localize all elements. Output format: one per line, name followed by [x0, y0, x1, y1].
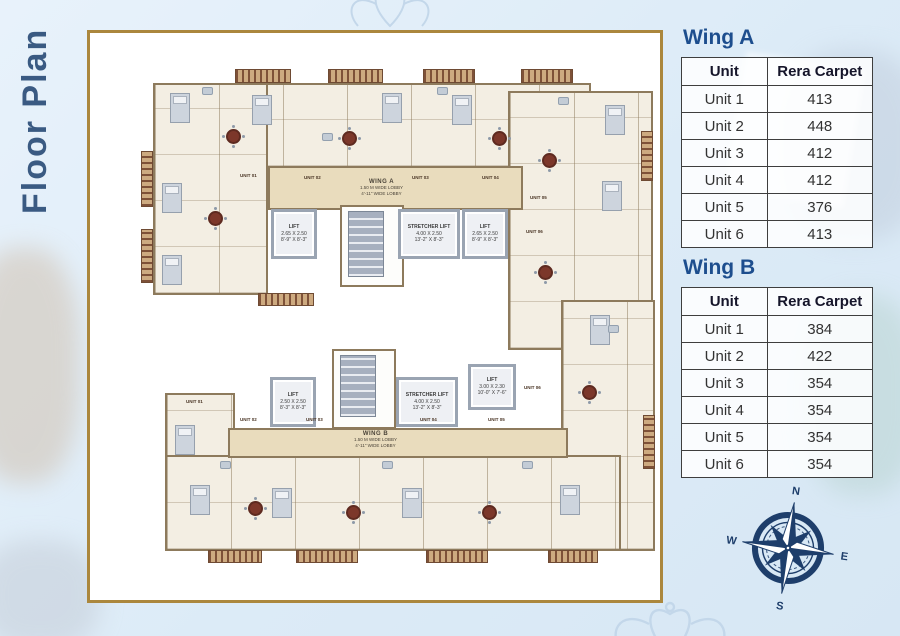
- wing-b-room-band: [165, 455, 621, 551]
- table-row: Unit 4412: [682, 167, 873, 194]
- table-row: Unit 5376: [682, 194, 873, 221]
- unit-tag: UNIT 02: [304, 175, 321, 180]
- compass-rose-icon: N E S W: [718, 478, 858, 618]
- furniture-bed: [170, 93, 190, 123]
- wing-a-stretcher-lift: STRETCHER LIFT 4.00 X 2.50 13'-2" X 8'-3…: [398, 209, 460, 259]
- balcony: [235, 69, 291, 83]
- furniture-bed: [272, 488, 292, 518]
- compass-south-label: S: [775, 600, 784, 613]
- unit-tag: UNIT 01: [240, 173, 257, 178]
- wing-a-section: Wing A Unit Rera Carpet Unit 1413 Unit 2…: [681, 26, 881, 248]
- furniture-dining-table: [346, 505, 361, 520]
- compass-west-label: W: [725, 534, 738, 547]
- furniture-bath-fixture: [322, 133, 333, 141]
- table-row: Unit 2448: [682, 113, 873, 140]
- unit-cell: Unit 1: [682, 86, 768, 113]
- unit-cell: Unit 6: [682, 221, 768, 248]
- lift-size-ft: 8'-3" X 8'-3": [280, 405, 306, 412]
- page-title: Floor Plan: [16, 28, 55, 214]
- furniture-dining-table: [248, 501, 263, 516]
- balcony: [141, 229, 153, 283]
- col-header-rera: Rera Carpet: [767, 58, 872, 86]
- unit-tag: UNIT 01: [186, 399, 203, 404]
- lift-size-ft: 13'-2" X 8'-3": [413, 405, 442, 412]
- table-row: Unit 5354: [682, 424, 873, 451]
- table-row: Unit 1413: [682, 86, 873, 113]
- unit-cell: Unit 6: [682, 451, 768, 478]
- furniture-bath-fixture: [220, 461, 231, 469]
- wing-b-heading: Wing B: [683, 256, 881, 280]
- carpet-cell: 412: [767, 167, 872, 194]
- furniture-dining-table: [542, 153, 557, 168]
- compass-north-label: N: [791, 485, 801, 498]
- balcony: [328, 69, 383, 83]
- carpet-cell: 384: [767, 316, 872, 343]
- compass-east-label: E: [840, 550, 849, 563]
- unit-cell: Unit 4: [682, 397, 768, 424]
- background-photo-blur-left: [0, 248, 80, 483]
- carpet-cell: 354: [767, 370, 872, 397]
- wing-b-lobby-ft: 4'-11" WIDE LOBBY: [328, 443, 423, 449]
- furniture-bed: [602, 181, 622, 211]
- furniture-dining-table: [582, 385, 597, 400]
- unit-tag: UNIT 03: [306, 417, 323, 422]
- lift-size-ft: 8'-9" X 8'-3": [281, 237, 307, 244]
- floor-plan-panel: LIFT 2.65 X 2.50 8'-9" X 8'-3" STRETCHER…: [87, 30, 663, 603]
- balcony: [296, 550, 358, 563]
- balcony: [521, 69, 573, 83]
- furniture-bed: [175, 425, 195, 455]
- unit-cell: Unit 2: [682, 343, 768, 370]
- wing-a-label: WING A 1.50 M WIDE LOBBY 4'-11" WIDE LOB…: [334, 179, 429, 197]
- col-header-rera: Rera Carpet: [767, 288, 872, 316]
- unit-tag: UNIT 05: [530, 195, 547, 200]
- unit-cell: Unit 4: [682, 167, 768, 194]
- unit-cell: Unit 5: [682, 194, 768, 221]
- header-row: Unit Rera Carpet: [682, 58, 873, 86]
- furniture-bath-fixture: [522, 461, 533, 469]
- wing-b-section: Wing B Unit Rera Carpet Unit 1384 Unit 2…: [681, 256, 881, 478]
- unit-cell: Unit 1: [682, 316, 768, 343]
- furniture-bed: [590, 315, 610, 345]
- furniture-bath-fixture: [608, 325, 619, 333]
- table-row: Unit 3354: [682, 370, 873, 397]
- unit-cell: Unit 3: [682, 370, 768, 397]
- carpet-cell: 412: [767, 140, 872, 167]
- furniture-bed: [452, 95, 472, 125]
- col-header-unit: Unit: [682, 58, 768, 86]
- furniture-bath-fixture: [202, 87, 213, 95]
- balcony: [258, 293, 314, 306]
- furniture-bath-fixture: [437, 87, 448, 95]
- lift-size-ft: 8'-9" X 8'-3": [472, 237, 498, 244]
- furniture-bed: [382, 93, 402, 123]
- furniture-bed: [560, 485, 580, 515]
- carpet-cell: 354: [767, 451, 872, 478]
- furniture-dining-table: [492, 131, 507, 146]
- furniture-bed: [162, 255, 182, 285]
- unit-tag: UNIT 06: [526, 229, 543, 234]
- furniture-dining-table: [342, 131, 357, 146]
- carpet-cell: 376: [767, 194, 872, 221]
- unit-cell: Unit 3: [682, 140, 768, 167]
- wing-b-label: WING B 1.50 M WIDE LOBBY 4'-11" WIDE LOB…: [328, 431, 423, 449]
- header-row: Unit Rera Carpet: [682, 288, 873, 316]
- carpet-cell: 448: [767, 113, 872, 140]
- wing-a-lobby-ft: 4'-11" WIDE LOBBY: [334, 191, 429, 197]
- furniture-bed: [402, 488, 422, 518]
- carpet-cell: 354: [767, 424, 872, 451]
- table-row: Unit 2422: [682, 343, 873, 370]
- carpet-cell: 422: [767, 343, 872, 370]
- unit-tag: UNIT 05: [488, 417, 505, 422]
- wing-b-lift-right: LIFT 3.00 X 2.30 10'-0" X 7'-6": [468, 364, 516, 410]
- furniture-bath-fixture: [558, 97, 569, 105]
- unit-cell: Unit 5: [682, 424, 768, 451]
- wing-b-table: Unit Rera Carpet Unit 1384 Unit 2422 Uni…: [681, 287, 873, 478]
- furniture-bath-fixture: [382, 461, 393, 469]
- carpet-cell: 354: [767, 397, 872, 424]
- unit-tag: UNIT 04: [420, 417, 437, 422]
- furniture-dining-table: [482, 505, 497, 520]
- furniture-bed: [252, 95, 272, 125]
- balcony: [141, 151, 153, 207]
- floor-plan: LIFT 2.65 X 2.50 8'-9" X 8'-3" STRETCHER…: [90, 33, 660, 600]
- lotus-watermark-top: [300, 0, 480, 32]
- carpet-cell: 413: [767, 221, 872, 248]
- balcony: [208, 550, 262, 563]
- unit-tag: UNIT 06: [524, 385, 541, 390]
- table-row: Unit 6413: [682, 221, 873, 248]
- furniture-dining-table: [226, 129, 241, 144]
- furniture-dining-table: [538, 265, 553, 280]
- balcony: [426, 550, 488, 563]
- wing-a-table: Unit Rera Carpet Unit 1413 Unit 2448 Uni…: [681, 57, 873, 248]
- lift-size-ft: 13'-2" X 8'-3": [415, 237, 444, 244]
- balcony: [641, 131, 653, 181]
- wing-a-staircase: [348, 211, 384, 277]
- wing-b-staircase: [340, 355, 376, 417]
- lift-size-ft: 10'-0" X 7'-6": [478, 390, 507, 397]
- background-photo-blur-bottom-left: [0, 540, 100, 636]
- wing-a-lift-right: LIFT 2.65 X 2.50 8'-9" X 8'-3": [462, 209, 508, 259]
- col-header-unit: Unit: [682, 288, 768, 316]
- table-row: Unit 6354: [682, 451, 873, 478]
- carpet-cell: 413: [767, 86, 872, 113]
- wing-a-lift-left: LIFT 2.65 X 2.50 8'-9" X 8'-3": [271, 209, 317, 259]
- balcony: [423, 69, 475, 83]
- table-row: Unit 4354: [682, 397, 873, 424]
- unit-cell: Unit 2: [682, 113, 768, 140]
- furniture-bed: [162, 183, 182, 213]
- unit-tag: UNIT 02: [240, 417, 257, 422]
- balcony: [548, 550, 598, 563]
- wing-a-heading: Wing A: [683, 26, 881, 50]
- unit-tag: UNIT 04: [482, 175, 499, 180]
- table-row: Unit 1384: [682, 316, 873, 343]
- table-row: Unit 3412: [682, 140, 873, 167]
- balcony: [643, 415, 655, 469]
- furniture-bed: [605, 105, 625, 135]
- furniture-bed: [190, 485, 210, 515]
- furniture-dining-table: [208, 211, 223, 226]
